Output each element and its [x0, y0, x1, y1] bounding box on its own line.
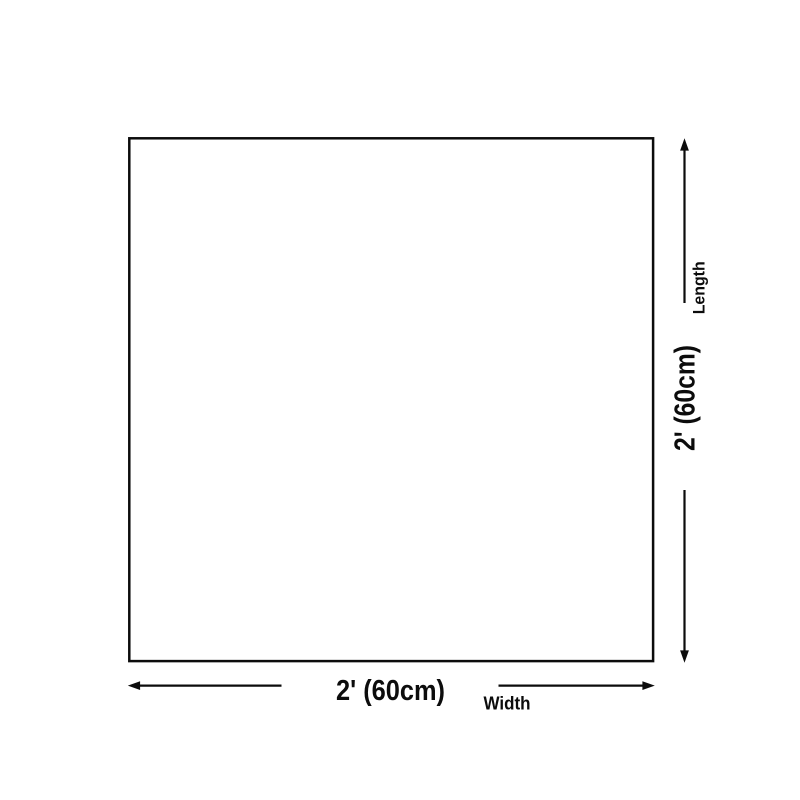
svg-text:Width: Width — [484, 693, 531, 714]
svg-text:Length: Length — [691, 261, 709, 314]
svg-text:2' (60cm): 2' (60cm) — [336, 675, 445, 707]
svg-text:2' (60cm): 2' (60cm) — [670, 345, 702, 451]
